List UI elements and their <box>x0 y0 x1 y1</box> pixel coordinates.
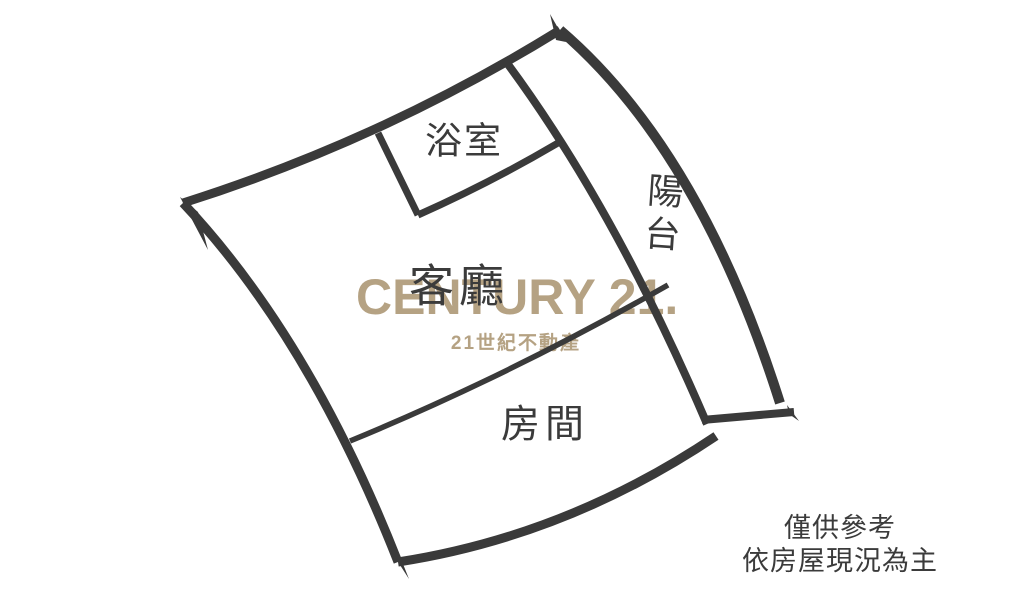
wall-bottom <box>398 436 716 562</box>
room-label-bathroom: 浴室 <box>425 122 503 163</box>
wall-bathroom-left <box>378 133 418 215</box>
floorplan-page: CENTURY 21. ® 21世紀不動產 浴室 客廳 陽台 房間 僅供參考 依… <box>0 0 1024 610</box>
disclaimer: 僅供參考 依房屋現況為主 <box>738 512 942 578</box>
corner-spur-balcony-end <box>787 405 799 421</box>
wall-balcony-end <box>702 412 794 420</box>
room-label-bedroom: 房間 <box>501 405 589 448</box>
disclaimer-line1: 僅供參考 <box>738 512 942 545</box>
wall-left <box>183 203 398 562</box>
room-label-balcony: 陽台 <box>638 171 683 260</box>
disclaimer-line2: 依房屋現況為主 <box>738 545 942 578</box>
room-label-living-room: 客廳 <box>409 261 509 311</box>
